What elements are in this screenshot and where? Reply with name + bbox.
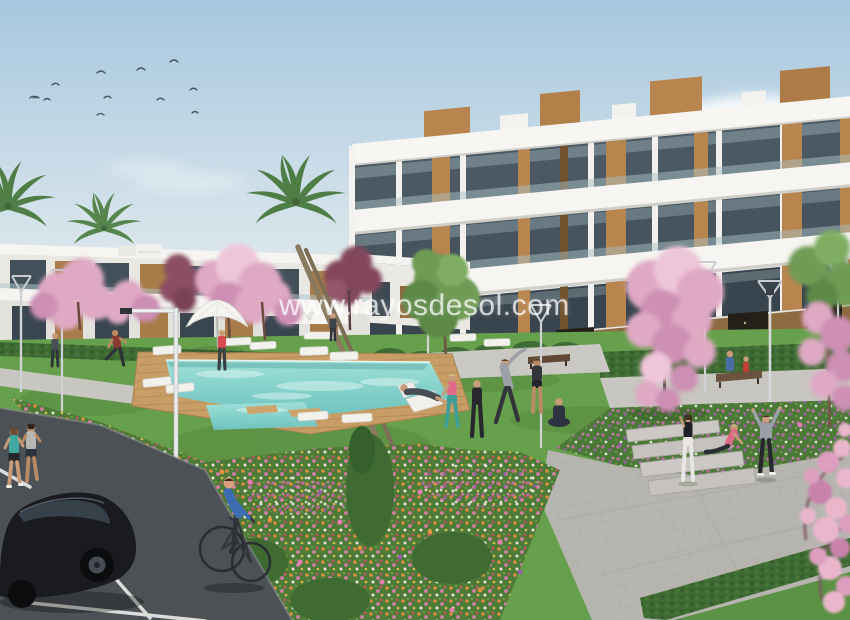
render-scene [0, 0, 850, 620]
property-render: www.rayosdesol.com [0, 0, 850, 620]
